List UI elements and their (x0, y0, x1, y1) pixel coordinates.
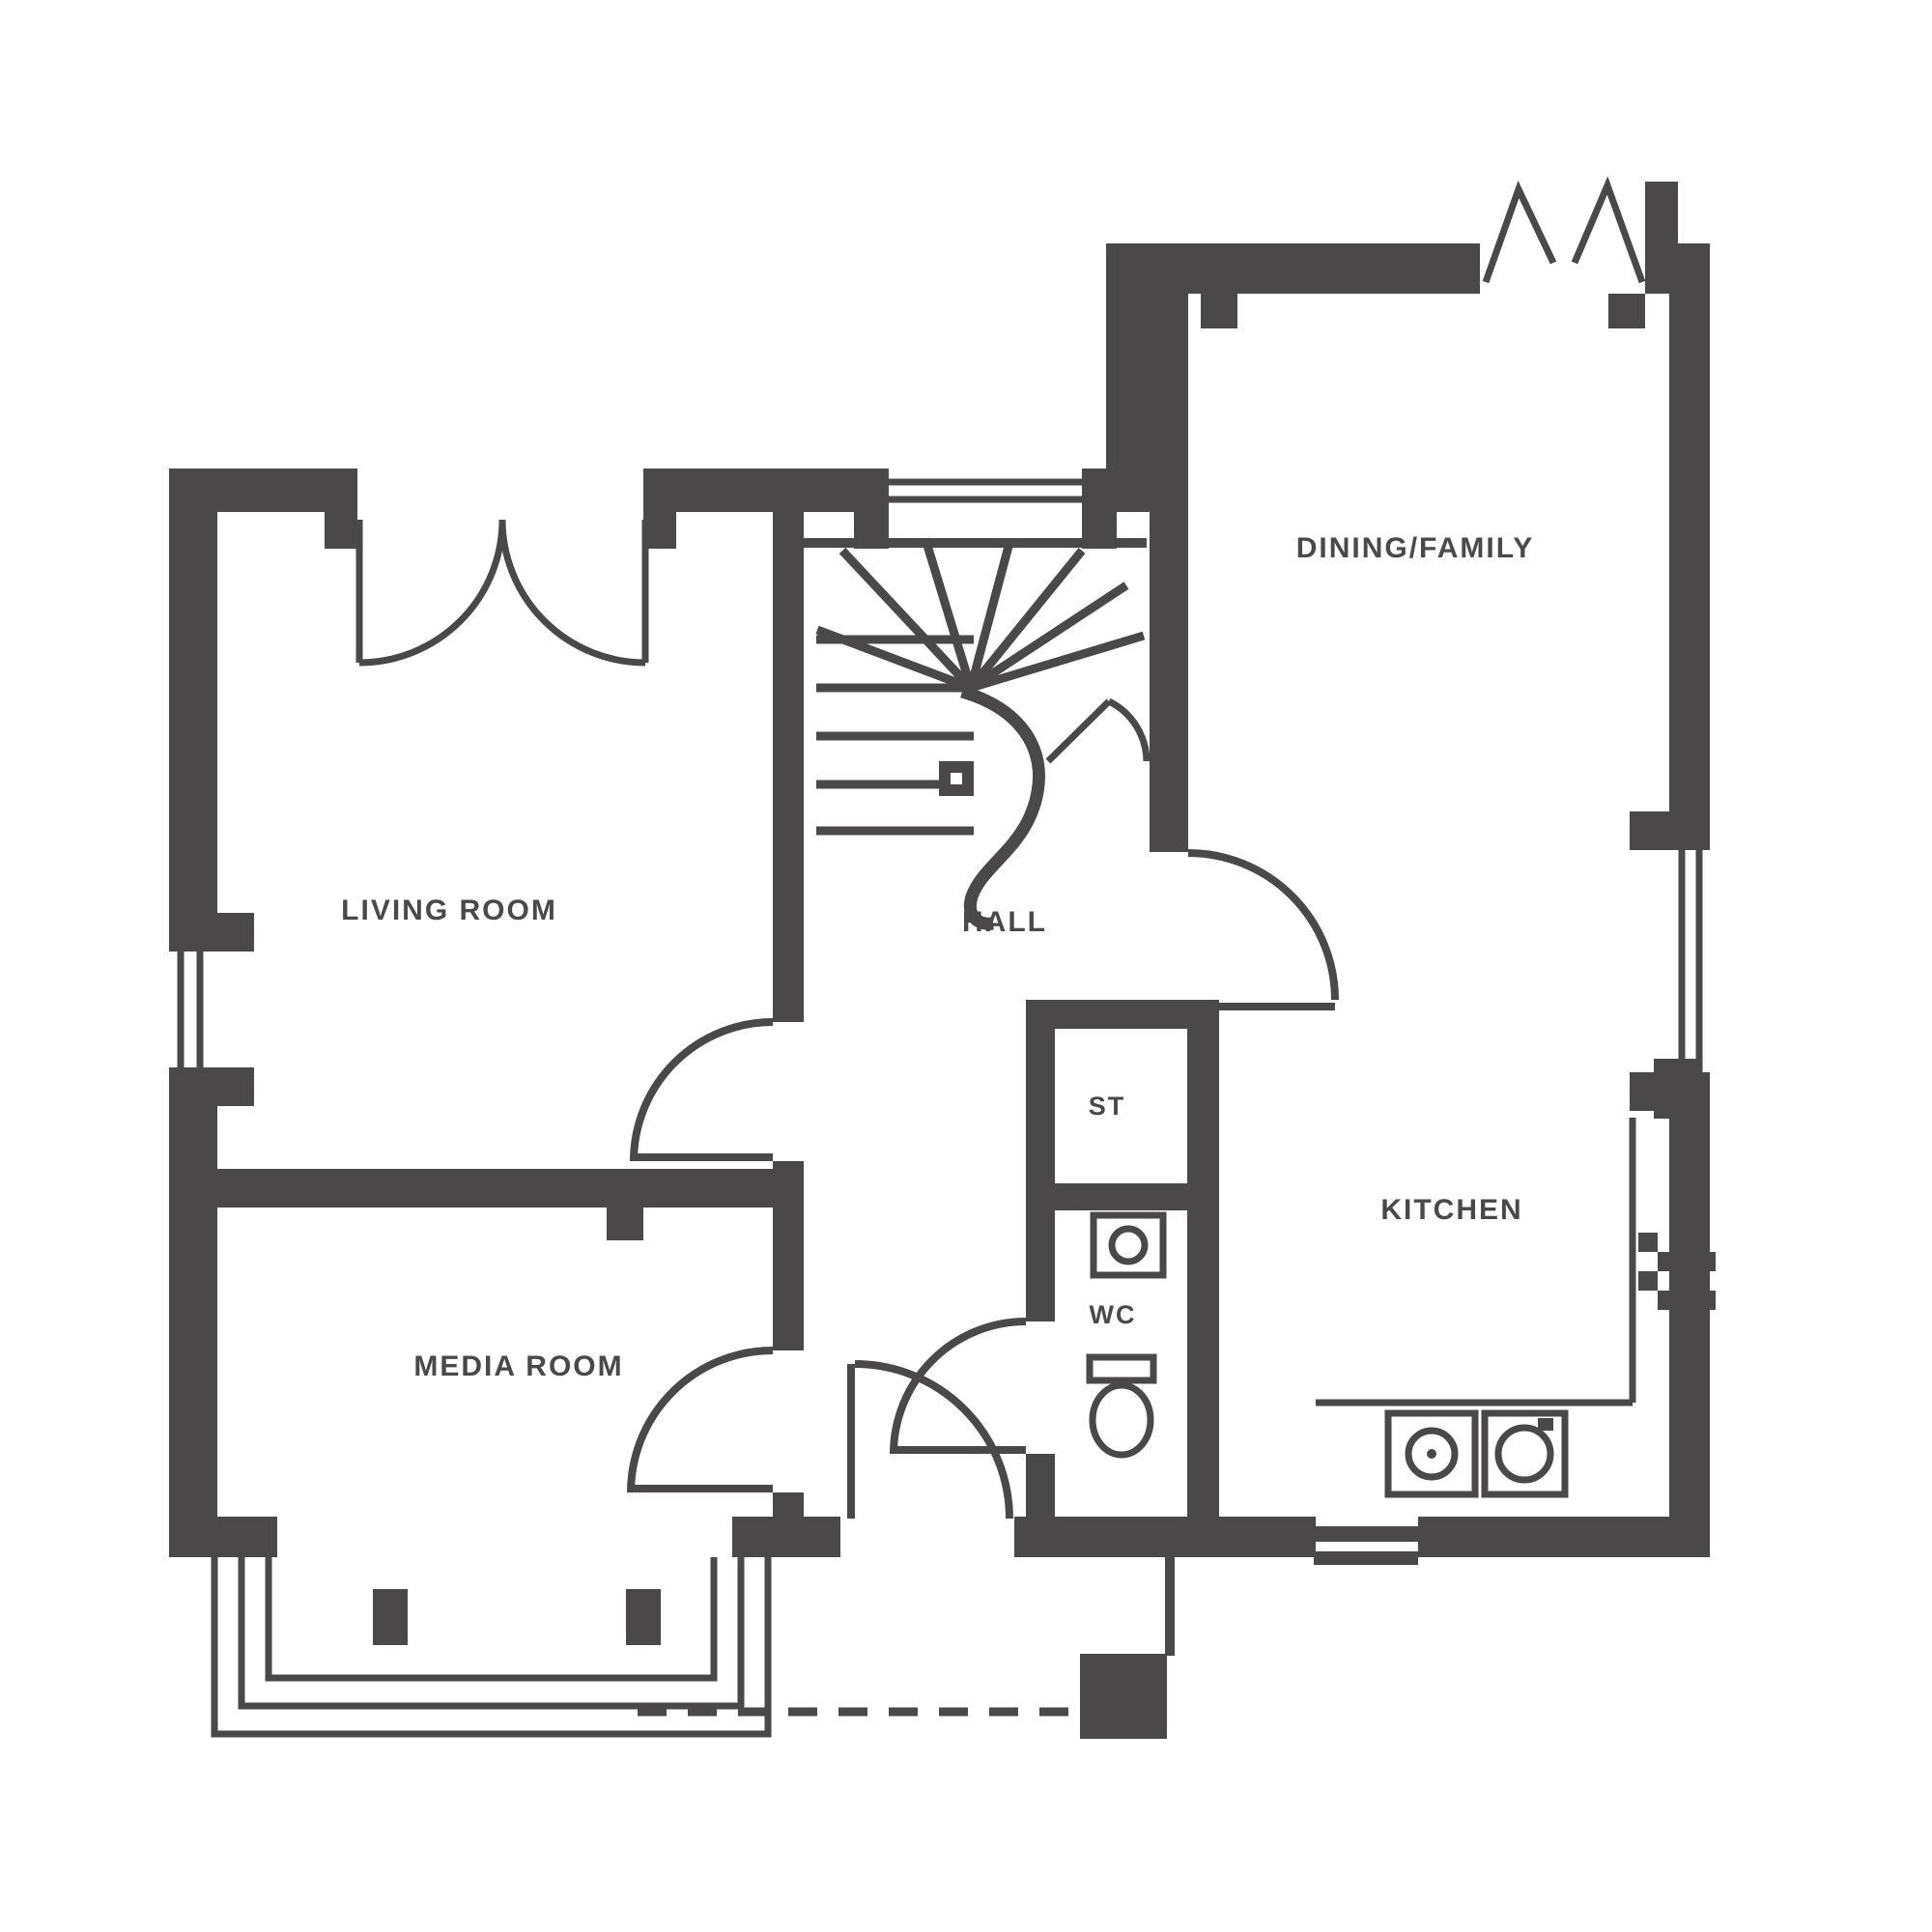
wall-segment (1669, 243, 1710, 850)
window-icon (1314, 1551, 1418, 1565)
door-swing-icon (855, 1364, 1009, 1519)
appliance-icon (1538, 1418, 1553, 1431)
window-kitchen (1314, 1526, 1418, 1565)
meter-box-icon (1080, 1654, 1167, 1739)
jamb-tick (1201, 294, 1237, 328)
boiler-icon (1654, 1059, 1702, 1119)
floor-plan: LIVING ROOM MEDIA ROOM DINING/FAMILY KIT… (0, 0, 1932, 1932)
wall-segment (1669, 1072, 1710, 1557)
room-label-living: LIVING ROOM (341, 895, 557, 926)
newel-post (951, 773, 962, 784)
front-door (851, 1364, 1009, 1519)
wall-segment (169, 469, 217, 952)
room-label-kitchen: KITCHEN (1380, 1194, 1522, 1226)
bay-mullion (626, 1589, 661, 1645)
wall-segment (773, 1492, 804, 1557)
jamb-tick (1150, 813, 1188, 850)
wall-segment (643, 469, 889, 512)
hob-cell (1638, 1233, 1658, 1252)
understairs-cupboard-door (1048, 701, 1147, 761)
wall-segment (169, 1517, 277, 1557)
room-label-dining-family: DINING/FAMILY (1296, 532, 1535, 564)
hob-cell (1696, 1252, 1716, 1271)
jamb-tick (325, 512, 357, 549)
patio-doors-open-icon (1575, 185, 1642, 282)
bay-window (214, 1557, 768, 1734)
media-room-door (631, 1350, 773, 1492)
hob-cell (1658, 1252, 1677, 1271)
appliance-icon (1485, 1413, 1565, 1494)
wc-fixtures (1090, 1215, 1163, 1455)
door-swing-icon (631, 1350, 773, 1492)
dining-door (1188, 853, 1335, 1007)
wall-segment (1418, 1517, 1710, 1557)
meter-connector (1165, 1557, 1175, 1656)
toilet-icon (1090, 1357, 1153, 1380)
meter-box-group (638, 1557, 1175, 1739)
basin-icon (1112, 1229, 1145, 1262)
door-leaf (1048, 701, 1109, 761)
door-swing-icon (1109, 701, 1147, 761)
french-doors-icon (359, 520, 502, 663)
french-doors-icon (502, 520, 645, 663)
toilet-icon (1093, 1385, 1151, 1455)
jamb-tick (1630, 811, 1669, 850)
hob-cell (1677, 1271, 1696, 1291)
hob-cell (1638, 1271, 1658, 1291)
wall-segment (217, 1169, 804, 1207)
wall-segment (1014, 1517, 1316, 1557)
window-icon (1314, 1526, 1418, 1542)
wall-segment (169, 469, 357, 512)
room-label-hall: HALL (962, 906, 1047, 938)
door-swing-icon (1188, 853, 1335, 1000)
wall-segment (1026, 1183, 1187, 1210)
bay-mullion (373, 1589, 408, 1645)
basin-icon (1094, 1215, 1163, 1275)
window-stairs (889, 482, 1082, 499)
patio-doors-open (1486, 185, 1642, 282)
jamb-tick (217, 913, 254, 952)
jamb-tick (217, 1067, 254, 1106)
room-label-media: MEDIA ROOM (413, 1350, 623, 1382)
hob-cell (1696, 1291, 1716, 1310)
appliance-icon (1498, 1428, 1550, 1480)
wall-segment (1263, 243, 1480, 294)
door-swing-icon (634, 1022, 773, 1161)
wall-segment (1187, 1000, 1219, 1517)
wall-segment (1026, 1000, 1055, 1321)
jamb-tick (1608, 294, 1645, 328)
door-swing-icon (894, 1321, 1026, 1454)
bay-window-icon (241, 1557, 741, 1706)
patio-doors-open-icon (1486, 189, 1553, 282)
appliance-icon (1427, 1449, 1436, 1459)
hob-cell (1677, 1233, 1696, 1252)
hob-cell (1658, 1291, 1677, 1310)
kitchen-fixtures (1316, 1059, 1716, 1494)
jamb-tick (607, 1207, 643, 1240)
wall-segment (1150, 294, 1188, 852)
french-doors (359, 520, 645, 663)
appliance-icon (1388, 1413, 1475, 1494)
staircase (804, 539, 1147, 923)
wc-door (894, 1321, 1026, 1454)
wall-segment (169, 1067, 217, 1557)
window-right (1682, 850, 1699, 1072)
room-label-wc: WC (1090, 1300, 1137, 1329)
wall-segment (1106, 243, 1263, 294)
window-left (181, 952, 200, 1067)
room-label-store: ST (1089, 1092, 1126, 1121)
handrail-volute (962, 692, 1038, 923)
wall-segment (773, 512, 804, 1022)
living-room-door (634, 1022, 773, 1161)
wall-segment (1026, 1454, 1055, 1517)
